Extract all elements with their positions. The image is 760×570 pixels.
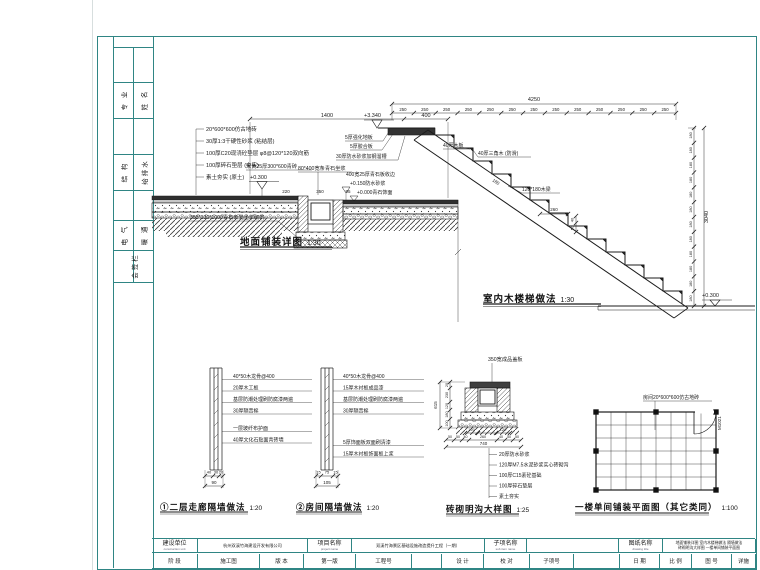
elevation-label: +3.340: [364, 113, 381, 119]
title-gutter: 砖砌明沟大样图1:25: [446, 503, 529, 515]
dim-label: 180: [689, 206, 693, 212]
wall-note: 40*50木龙骨@400: [343, 373, 385, 380]
tile-layer: [152, 196, 298, 200]
elevation-label: +0.000青石饰面: [357, 189, 392, 196]
stair-nosing: [622, 252, 626, 256]
title-wall2-scale: 1:20: [367, 505, 380, 512]
title-wall1: ①二层走廊隔墙做法1:20: [160, 501, 262, 513]
wall-hatch: [214, 410, 218, 414]
concrete-layer: [343, 207, 458, 214]
stair-note: 5厚强化地板: [345, 134, 373, 141]
wall-note: 15厚木衬板成品漆: [343, 385, 384, 392]
wall-hatch: [214, 374, 218, 378]
title-paving-scale: 1:30: [307, 240, 321, 247]
gutter-note: 100厚C15素砼基础: [499, 472, 542, 479]
dim-label: 180: [445, 411, 449, 417]
gutter-gravel: [458, 420, 517, 427]
stair-beam-label: 120*180木梁: [522, 186, 551, 193]
stair-nosing: [451, 135, 455, 139]
gravel-layer: [343, 214, 458, 219]
stair-nosing: [641, 265, 645, 269]
stair-nosing: [584, 226, 588, 230]
plan-column-dot: [594, 449, 599, 454]
elevation-label: +0.300: [250, 175, 267, 181]
stair-landing: [388, 128, 435, 135]
dim-label: 120: [500, 427, 507, 432]
gutter-cover-label: 350宽成品盖板: [488, 355, 523, 363]
gutter-note: 素土夯实: [499, 493, 519, 500]
wall-note: 40*50木龙骨@400: [233, 373, 275, 380]
door-opening: [695, 411, 714, 414]
dim-label: 260: [550, 207, 558, 212]
stair-nosing: [679, 291, 683, 295]
wall-hatch: [214, 458, 218, 462]
wall-note: 20厚木工板: [233, 385, 259, 392]
elevation-label: +0.150防水砂浆: [350, 180, 385, 187]
dim-label: 100: [445, 420, 449, 426]
title-plan: 一楼单间铺装平面图（其它类同）1:100: [575, 501, 738, 513]
paving-note: 100厚C20现浇砼垫层 φ8@120*120双向筋: [206, 149, 309, 157]
paving-bottom-label: 355*130*1000青石条凳坐浆砌筑: [190, 213, 265, 221]
dim-label: 50: [456, 435, 460, 439]
wall-note: 5厚饰面板双面刷清漆: [343, 439, 391, 446]
gutter-base: [461, 412, 514, 420]
wall-note: 30厚隔音棉: [343, 408, 369, 415]
elevation-label: +0.300: [702, 293, 719, 299]
wall-hatch: [214, 434, 218, 438]
dim-label: 250: [421, 107, 429, 112]
wall-note: 一层玻纤布护面: [233, 425, 268, 432]
stair-tread-label: 40厚木板: [443, 142, 464, 149]
dim-label: 250: [574, 107, 582, 112]
dim-label: 250: [596, 107, 604, 112]
wall-hatch: [214, 398, 218, 402]
dim-label: 50: [448, 435, 452, 439]
concrete-layer: [152, 203, 298, 212]
dim-label: 400: [421, 113, 430, 119]
wall-hatch: [325, 422, 329, 426]
title-gutter-scale: 1:25: [517, 507, 530, 514]
dim-total-label: 3040: [704, 211, 710, 223]
plan-column-dot: [714, 449, 719, 454]
dim-label: 260: [480, 435, 486, 439]
title-stair-scale: 1:30: [561, 297, 575, 304]
dim-label: 220: [282, 189, 290, 194]
title-wall1-scale: 1:20: [250, 505, 263, 512]
dim-label: 180: [689, 251, 693, 257]
stair-note: 5厚胶合板: [350, 143, 373, 150]
paving-note: 20*600*600仿古地砖: [206, 125, 257, 133]
stair-nosing: [660, 278, 664, 282]
stair-nosing: [603, 239, 607, 243]
door-tag: M1021: [717, 416, 722, 430]
dim-label: 120: [468, 427, 475, 432]
cad-linework: 20*600*600仿古地砖30厚1:3干硬性砂浆 (粘结层)100厚C20现浇…: [0, 0, 760, 570]
dim-total-label: 4250: [528, 97, 540, 103]
plan-column-dot: [594, 488, 599, 493]
dim-label: 20: [445, 383, 449, 387]
paving-curb-label: 80*400宽条青石坐浆: [298, 164, 346, 172]
dim-label: 40: [570, 217, 575, 222]
plan-column-dot: [714, 488, 719, 493]
dim-label: 180: [689, 147, 693, 153]
wall-note: 基层防潮处理刷防腐漆两遍: [233, 396, 293, 403]
wall-hatch: [325, 410, 329, 414]
leader-line: [383, 130, 390, 141]
leader-line: [398, 136, 405, 160]
dim-label: 180: [689, 295, 693, 301]
title-plan-text: 一楼单间铺装平面图（其它类同）: [575, 502, 718, 512]
dim-label: 40: [464, 435, 468, 439]
plan-column-dot: [654, 410, 659, 415]
wall-hatch: [325, 398, 329, 402]
title-wall2: ②房间隔墙做法1:20: [296, 501, 379, 513]
tile-layer: [343, 200, 458, 204]
dim-label: 20: [219, 470, 224, 475]
wall-hatch: [325, 446, 329, 450]
dim-label: 15: [316, 470, 321, 475]
gutter-wall: [497, 388, 510, 412]
dim-label: 250: [465, 107, 473, 112]
door-swing-arc: [694, 412, 716, 434]
elev-triangle: [372, 120, 382, 128]
pit-stone: [311, 203, 330, 220]
wall-note: 40厚文化石贴面青砖墙: [233, 437, 284, 444]
elev-triangle: [257, 182, 267, 190]
title-stair: 室内木楼梯做法1:30: [483, 291, 574, 305]
stair-nosing: [546, 200, 550, 204]
pit-wall: [298, 196, 308, 232]
plan-column-dot: [654, 488, 659, 493]
paving-note: 30厚1:3干硬性砂浆 (粘结层): [206, 137, 275, 145]
title-stair-text: 室内木楼梯做法: [483, 294, 557, 305]
dim-label: 180: [689, 162, 693, 168]
wall-hatch: [214, 446, 218, 450]
dim-label: 120: [445, 403, 449, 409]
wall-hatch: [325, 374, 329, 378]
paving-note: 素土夯实 (原土): [206, 173, 244, 181]
dim-label: 50: [507, 435, 511, 439]
wall-hatch: [325, 458, 329, 462]
dim-label: 50: [515, 435, 519, 439]
dim-label: 250: [443, 107, 451, 112]
dim-label: 250: [530, 107, 538, 112]
plan-tile-label: 房间20*600*600仿古地砖: [643, 394, 699, 401]
dim-label: 180: [689, 236, 693, 242]
dim-label: 250: [509, 107, 517, 112]
dim-total-label: 105: [323, 480, 331, 485]
wall-note: 15厚木衬板饰面板上浆: [343, 451, 394, 458]
wall-note: 30厚隔音棉: [233, 408, 259, 415]
dim-label: 250: [487, 107, 495, 112]
paving-stone-label: 米黄25厚300*600青砖: [246, 162, 297, 170]
gutter-note: 20厚防水砂浆: [499, 451, 530, 458]
dim-label: 230: [445, 392, 449, 398]
gutter-note: 100厚碎石垫层: [499, 483, 532, 490]
dim-label: 1400: [321, 113, 333, 119]
stair-nosing: [489, 161, 493, 165]
title-plan-scale: 1:100: [722, 505, 738, 512]
stair-stringer: [428, 130, 688, 308]
paving-edge-label: 400宽25厚青石板收边: [346, 171, 395, 178]
dim-label: 180: [689, 221, 693, 227]
dim-label: 350: [316, 189, 324, 194]
wall-hatch: [214, 422, 218, 426]
dim-total-label: 615: [433, 401, 438, 409]
gutter-note: 120厚M7.5水泥砂浆实心砖砌沟: [499, 462, 568, 469]
soil-hatch: [343, 219, 458, 231]
dim-label: 40: [207, 470, 212, 475]
title-wall1-text: ①二层走廊隔墙做法: [160, 502, 246, 512]
title-paving: 地面铺装详图1:30: [240, 234, 321, 248]
dim-label: 40: [499, 435, 503, 439]
dim-label: 180: [689, 281, 693, 287]
wall-note: 基层防潮处理刷防腐漆两遍: [343, 396, 403, 403]
stair-nosing: [470, 148, 474, 152]
dim-label: 250: [399, 107, 407, 112]
gutter-cover: [470, 382, 510, 388]
plan-column-dot: [594, 410, 599, 415]
stair-nosing: [508, 174, 512, 178]
dim-label: 75: [325, 470, 330, 475]
drawing-sheet: 专 业姓 名结 构给排水电 气暖 通会签栏 建设单位construction u…: [0, 0, 760, 570]
gutter-wall: [465, 388, 478, 412]
gutter-cavity: [478, 388, 497, 406]
wall-hatch: [325, 386, 329, 390]
dim-label: 250: [618, 107, 626, 112]
dim-label: 250: [661, 107, 669, 112]
title-gutter-text: 砖砌明沟大样图: [446, 504, 513, 514]
title-paving-text: 地面铺装详图: [240, 237, 303, 248]
dim-label: 15: [333, 470, 338, 475]
dim-label: 50: [570, 225, 575, 230]
dim-label: 180: [689, 132, 693, 138]
dim-total-label: 740: [480, 441, 488, 446]
dim-label: 250: [640, 107, 648, 112]
stair-nosing-label: 40厚三角木 (防滑): [478, 150, 519, 157]
dim-label: 250: [552, 107, 560, 112]
wall-hatch: [325, 434, 329, 438]
cad-line: [674, 308, 688, 318]
dim-label: 180: [689, 192, 693, 198]
wall-hatch: [214, 386, 218, 390]
dim-total-label: 90: [211, 480, 217, 485]
pit-wall: [333, 200, 343, 232]
leader-line: [382, 134, 393, 150]
title-wall2-text: ②房间隔墙做法: [296, 502, 363, 512]
stair-note: 30厚防水砂浆加钢溜槽: [336, 153, 387, 160]
elev-triangle: [710, 300, 720, 306]
dim-label: 180: [689, 177, 693, 183]
dim-label: 180: [689, 266, 693, 272]
